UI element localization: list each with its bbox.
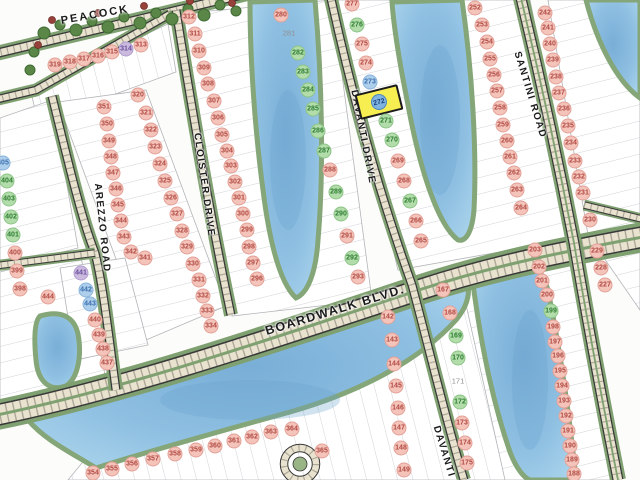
lot-badge-321[interactable]: 321 <box>139 106 154 121</box>
lot-badge-265[interactable]: 265 <box>414 234 429 249</box>
lot-badge-258[interactable]: 258 <box>493 101 508 116</box>
lot-badge-282[interactable]: 282 <box>291 46 306 61</box>
lot-badge-264[interactable]: 264 <box>514 201 529 216</box>
lot-badge-327[interactable]: 327 <box>170 207 185 222</box>
lot-badge-313[interactable]: 313 <box>134 38 149 53</box>
lot-badge-271[interactable]: 271 <box>379 114 394 129</box>
lot-badge-269[interactable]: 269 <box>391 154 406 169</box>
lot-badge-330[interactable]: 330 <box>186 257 201 272</box>
lot-badge-287[interactable]: 287 <box>317 144 332 159</box>
lot-badge-351[interactable]: 351 <box>97 100 112 115</box>
lot-badge-188[interactable]: 188 <box>567 467 582 480</box>
lot-badge-317[interactable]: 317 <box>77 52 92 67</box>
lot-badge-275[interactable]: 275 <box>355 37 370 52</box>
lot-badge-192[interactable]: 192 <box>559 409 574 424</box>
lot-badge-325[interactable]: 325 <box>158 174 173 189</box>
lot-badge-312[interactable]: 312 <box>182 10 197 25</box>
lot-badge-146[interactable]: 146 <box>391 401 406 416</box>
lot-badge-305[interactable]: 305 <box>215 128 230 143</box>
lot-badge-344[interactable]: 344 <box>114 214 129 229</box>
lot-badge-194[interactable]: 194 <box>555 379 570 394</box>
lot-badge-168[interactable]: 168 <box>443 306 458 321</box>
lot-badge-318[interactable]: 318 <box>63 55 78 70</box>
lot-badge-355[interactable]: 355 <box>105 462 120 477</box>
lot-badge-286[interactable]: 286 <box>311 124 326 139</box>
lot-badge-149[interactable]: 149 <box>397 463 412 478</box>
lot-badge-277[interactable]: 277 <box>345 0 360 12</box>
lot-badge-306[interactable]: 306 <box>211 111 226 126</box>
lot-badge-314[interactable]: 314 <box>119 42 134 57</box>
lot-badge-276[interactable]: 276 <box>350 18 365 33</box>
lot-badge-322[interactable]: 322 <box>144 123 159 138</box>
lot-badge-253[interactable]: 253 <box>475 18 490 33</box>
lot-badge-364[interactable]: 364 <box>285 422 300 437</box>
lot-badge-405[interactable]: 405 <box>0 156 11 171</box>
lot-badge-274[interactable]: 274 <box>359 56 374 71</box>
lot-badge-169[interactable]: 169 <box>449 329 464 344</box>
lot-badge-270[interactable]: 270 <box>385 133 400 148</box>
lot-badge-444[interactable]: 444 <box>41 290 56 305</box>
lot-badge-175[interactable]: 175 <box>460 456 475 471</box>
lot-badge-232[interactable]: 232 <box>572 170 587 185</box>
lot-badge-350[interactable]: 350 <box>100 117 115 132</box>
lot-badge-197[interactable]: 197 <box>548 335 563 350</box>
lot-badge-354[interactable]: 354 <box>86 466 101 480</box>
lot-badge-402[interactable]: 402 <box>4 210 19 225</box>
lot-badge-403[interactable]: 403 <box>2 192 17 207</box>
lot-badge-257[interactable]: 257 <box>490 84 505 99</box>
lot-badge-228[interactable]: 228 <box>594 261 609 276</box>
lot-badge-284[interactable]: 284 <box>301 83 316 98</box>
lot-badge-297[interactable]: 297 <box>246 256 261 271</box>
lot-badge-363[interactable]: 363 <box>264 425 279 440</box>
lot-badge-256[interactable]: 256 <box>487 68 502 83</box>
lot-badge-324[interactable]: 324 <box>153 157 168 172</box>
lot-badge-191[interactable]: 191 <box>561 424 576 439</box>
lot-badge-349[interactable]: 349 <box>102 134 117 149</box>
lot-badge-400[interactable]: 400 <box>8 246 23 261</box>
highlighted-lot-number: 272 <box>369 92 388 111</box>
lot-badge-190[interactable]: 190 <box>563 439 578 454</box>
lot-badge-233[interactable]: 233 <box>568 154 583 169</box>
lot-badge-147[interactable]: 147 <box>392 421 407 436</box>
lot-badge-170[interactable]: 170 <box>451 351 466 366</box>
lot-badge-172[interactable]: 172 <box>453 395 468 410</box>
lot-badge-334[interactable]: 334 <box>204 319 219 334</box>
lot-badge-173[interactable]: 173 <box>455 416 470 431</box>
lot-badge-323[interactable]: 323 <box>148 140 163 155</box>
lot-badge-254[interactable]: 254 <box>480 35 495 50</box>
lot-badge-362[interactable]: 362 <box>245 430 260 445</box>
highlighted-lot-272[interactable]: 272 <box>355 84 404 120</box>
lot-badge-238[interactable]: 238 <box>549 70 564 85</box>
lot-badge-358[interactable]: 358 <box>168 447 183 462</box>
lot-badge-303[interactable]: 303 <box>224 159 239 174</box>
lot-badge-301[interactable]: 301 <box>232 191 247 206</box>
lot-badge-399[interactable]: 399 <box>10 264 25 279</box>
lot-badge-328[interactable]: 328 <box>175 224 190 239</box>
lot-badge-148[interactable]: 148 <box>394 441 409 456</box>
lot-badge-401[interactable]: 401 <box>6 228 21 243</box>
lot-badge-290[interactable]: 290 <box>334 207 349 222</box>
lot-badge-332[interactable]: 332 <box>196 289 211 304</box>
lot-badge-288[interactable]: 288 <box>323 163 338 178</box>
lot-badge-261[interactable]: 261 <box>503 150 518 165</box>
lot-badge-240[interactable]: 240 <box>543 37 558 52</box>
lot-badge-145[interactable]: 145 <box>389 379 404 394</box>
lot-badge-304[interactable]: 304 <box>220 144 235 159</box>
lot-badge-289[interactable]: 289 <box>329 185 344 200</box>
lot-badge-291[interactable]: 291 <box>340 229 355 244</box>
lot-badge-203[interactable]: 203 <box>528 243 543 258</box>
lot-badge-199[interactable]: 199 <box>544 304 559 319</box>
lot-badge-346[interactable]: 346 <box>109 182 124 197</box>
lot-badge-200[interactable]: 200 <box>540 288 555 303</box>
lot-badge-342[interactable]: 342 <box>124 245 139 260</box>
lot-badge-189[interactable]: 189 <box>565 453 580 468</box>
lot-badge-343[interactable]: 343 <box>117 230 132 245</box>
lot-badge-239[interactable]: 239 <box>546 53 561 68</box>
lot-badge-440[interactable]: 440 <box>88 313 103 328</box>
lot-badge-360[interactable]: 360 <box>208 439 223 454</box>
lot-badge-404[interactable]: 404 <box>0 174 15 189</box>
lot-badge-438[interactable]: 438 <box>96 342 111 357</box>
lot-badge-443[interactable]: 443 <box>83 297 98 312</box>
plat-map: PEACOCK CLOISTER DRIVE AREZZO ROAD DAVAN… <box>0 0 640 480</box>
lot-badge-196[interactable]: 196 <box>551 349 566 364</box>
lot-badge-326[interactable]: 326 <box>164 191 179 206</box>
lot-badge-280[interactable]: 280 <box>274 8 289 23</box>
lot-badge-236[interactable]: 236 <box>557 102 572 117</box>
lot-badge-231[interactable]: 231 <box>576 186 591 201</box>
lot-badge-348[interactable]: 348 <box>104 150 119 165</box>
lot-badge-285[interactable]: 285 <box>306 102 321 117</box>
lot-badge-345[interactable]: 345 <box>111 198 126 213</box>
lot-badge-263[interactable]: 263 <box>510 183 525 198</box>
lot-badge-309[interactable]: 309 <box>197 61 212 76</box>
lot-badge-283[interactable]: 283 <box>296 65 311 80</box>
lot-badge-341[interactable]: 341 <box>138 251 153 266</box>
lot-badge-300[interactable]: 300 <box>236 207 251 222</box>
lot-badge-227[interactable]: 227 <box>598 278 613 293</box>
lot-badge-347[interactable]: 347 <box>106 166 121 181</box>
lot-badge-266[interactable]: 266 <box>409 214 424 229</box>
lot-badge-143[interactable]: 143 <box>385 333 400 348</box>
lot-badge-171[interactable]: 171 <box>452 375 465 388</box>
lot-badge-259[interactable]: 259 <box>496 118 511 133</box>
lot-badge-315[interactable]: 315 <box>105 45 120 60</box>
lot-badge-331[interactable]: 331 <box>192 273 207 288</box>
lot-badge-241[interactable]: 241 <box>541 21 556 36</box>
lot-badge-229[interactable]: 229 <box>590 244 605 259</box>
lot-badge-361[interactable]: 361 <box>227 434 242 449</box>
lot-badge-437[interactable]: 437 <box>100 356 115 371</box>
lot-badges-layer: 3193183173163153143134054044034024014003… <box>0 0 640 480</box>
lot-badge-234[interactable]: 234 <box>564 136 579 151</box>
lot-badge-201[interactable]: 201 <box>535 274 550 289</box>
lot-badge-281[interactable]: 281 <box>283 27 296 40</box>
lot-badge-333[interactable]: 333 <box>200 304 215 319</box>
lot-badge-316[interactable]: 316 <box>91 49 106 64</box>
lot-badge-311[interactable]: 311 <box>188 27 203 42</box>
lot-badge-398[interactable]: 398 <box>13 282 28 297</box>
lot-badge-439[interactable]: 439 <box>92 328 107 343</box>
lot-badge-441[interactable]: 441 <box>74 266 89 281</box>
lot-badge-174[interactable]: 174 <box>458 436 473 451</box>
lot-badge-268[interactable]: 268 <box>397 174 412 189</box>
lot-badge-298[interactable]: 298 <box>242 240 257 255</box>
lot-badge-195[interactable]: 195 <box>553 364 568 379</box>
lot-badge-255[interactable]: 255 <box>483 52 498 67</box>
lot-badge-359[interactable]: 359 <box>189 443 204 458</box>
lot-badge-198[interactable]: 198 <box>546 320 561 335</box>
lot-badge-202[interactable]: 202 <box>532 260 547 275</box>
lot-badge-262[interactable]: 262 <box>507 166 522 181</box>
lot-badge-307[interactable]: 307 <box>207 94 222 109</box>
lot-badge-310[interactable]: 310 <box>192 44 207 59</box>
lot-badge-193[interactable]: 193 <box>557 394 572 409</box>
lot-badge-365[interactable]: 365 <box>315 444 330 459</box>
lot-badge-237[interactable]: 237 <box>552 86 567 101</box>
lot-badge-302[interactable]: 302 <box>228 175 243 190</box>
lot-badge-292[interactable]: 292 <box>345 251 360 266</box>
lot-badge-299[interactable]: 299 <box>240 223 255 238</box>
lot-badge-356[interactable]: 356 <box>125 457 140 472</box>
lot-badge-267[interactable]: 267 <box>403 194 418 209</box>
lot-badge-252[interactable]: 252 <box>468 1 483 16</box>
lot-badge-230[interactable]: 230 <box>583 213 598 228</box>
lot-badge-293[interactable]: 293 <box>351 270 366 285</box>
lot-badge-320[interactable]: 320 <box>131 88 146 103</box>
lot-badge-319[interactable]: 319 <box>48 58 63 73</box>
lot-badge-329[interactable]: 329 <box>180 240 195 255</box>
lot-badge-242[interactable]: 242 <box>538 6 553 21</box>
lot-badge-142[interactable]: 142 <box>381 310 396 325</box>
lot-badge-260[interactable]: 260 <box>500 134 515 149</box>
lot-badge-273[interactable]: 273 <box>363 75 378 90</box>
lot-badge-442[interactable]: 442 <box>79 283 94 298</box>
lot-badge-308[interactable]: 308 <box>201 77 216 92</box>
lot-badge-296[interactable]: 296 <box>250 272 265 287</box>
lot-badge-357[interactable]: 357 <box>146 452 161 467</box>
lot-badge-235[interactable]: 235 <box>561 119 576 134</box>
lot-badge-167[interactable]: 167 <box>436 283 451 298</box>
lot-badge-144[interactable]: 144 <box>387 357 402 372</box>
